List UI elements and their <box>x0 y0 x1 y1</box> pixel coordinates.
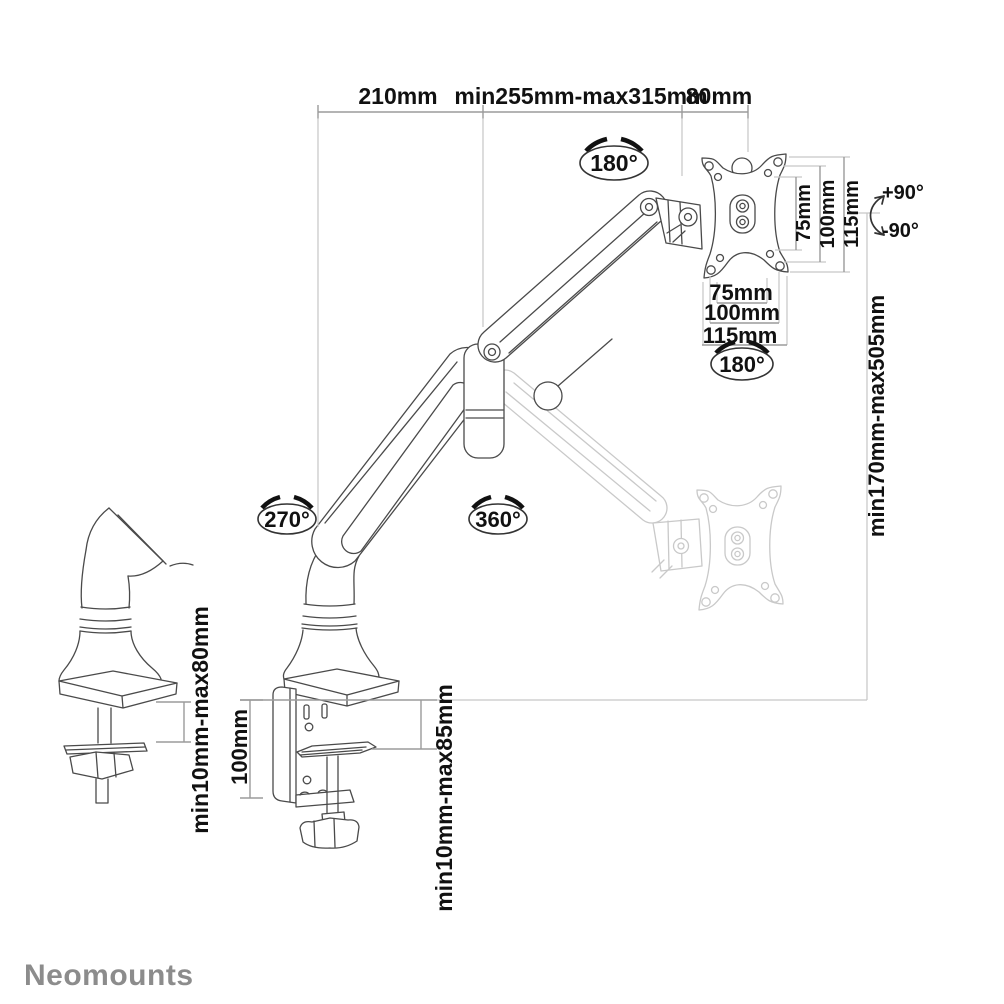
ghost-tilt-joint <box>652 519 702 578</box>
rotation-270-base-label: 270° <box>264 507 310 532</box>
tilt-joint <box>656 198 702 249</box>
ghost-arm-position <box>490 370 783 610</box>
rotation-270-base: 270° <box>258 497 316 534</box>
elbow-pivot <box>484 344 500 360</box>
dim-clamp-height: 100mm <box>227 709 252 785</box>
dim-vesa-side-75: 75mm <box>793 184 815 242</box>
dim-vesa-bottom-100: 100mm <box>704 300 780 325</box>
ghost-vesa-plate <box>697 486 783 610</box>
dim-arm-section-2: min255mm-max315mm <box>454 83 707 109</box>
rotation-180-top-label: 180° <box>590 150 638 176</box>
monitor-arm-dimension-diagram: 180° 180° 270° 360° 210mm min255mm-max31… <box>0 0 1004 1004</box>
rotation-180-top: 180° <box>580 139 648 180</box>
dim-tilt-up: +90° <box>882 182 924 204</box>
dim-arm-section-3: 80mm <box>686 83 752 109</box>
dim-vesa-bottom-115: 115mm <box>703 323 778 348</box>
dim-grip-detail: min10mm-max80mm <box>187 606 213 834</box>
dim-height-range: min170mm-max505mm <box>864 295 889 537</box>
dim-arm-section-1: 210mm <box>358 83 437 109</box>
rotation-180-vesa-label: 180° <box>719 352 765 377</box>
dim-vesa-side-100: 100mm <box>817 180 839 249</box>
rotation-360-arm: 360° <box>469 497 527 534</box>
base-detail-drawing <box>59 508 193 803</box>
diagram-page: 180° 180° 270° 360° 210mm min255mm-max31… <box>0 0 1004 1004</box>
head-pivot <box>641 199 658 216</box>
brand-logo: Neomounts <box>24 959 194 992</box>
dim-vesa-side-115: 115mm <box>841 180 863 248</box>
dim-grip-main: min10mm-max85mm <box>431 684 457 912</box>
desk-clamp <box>273 687 376 848</box>
rotation-360-arm-label: 360° <box>475 507 521 532</box>
dim-tilt-down: -90° <box>882 220 919 242</box>
